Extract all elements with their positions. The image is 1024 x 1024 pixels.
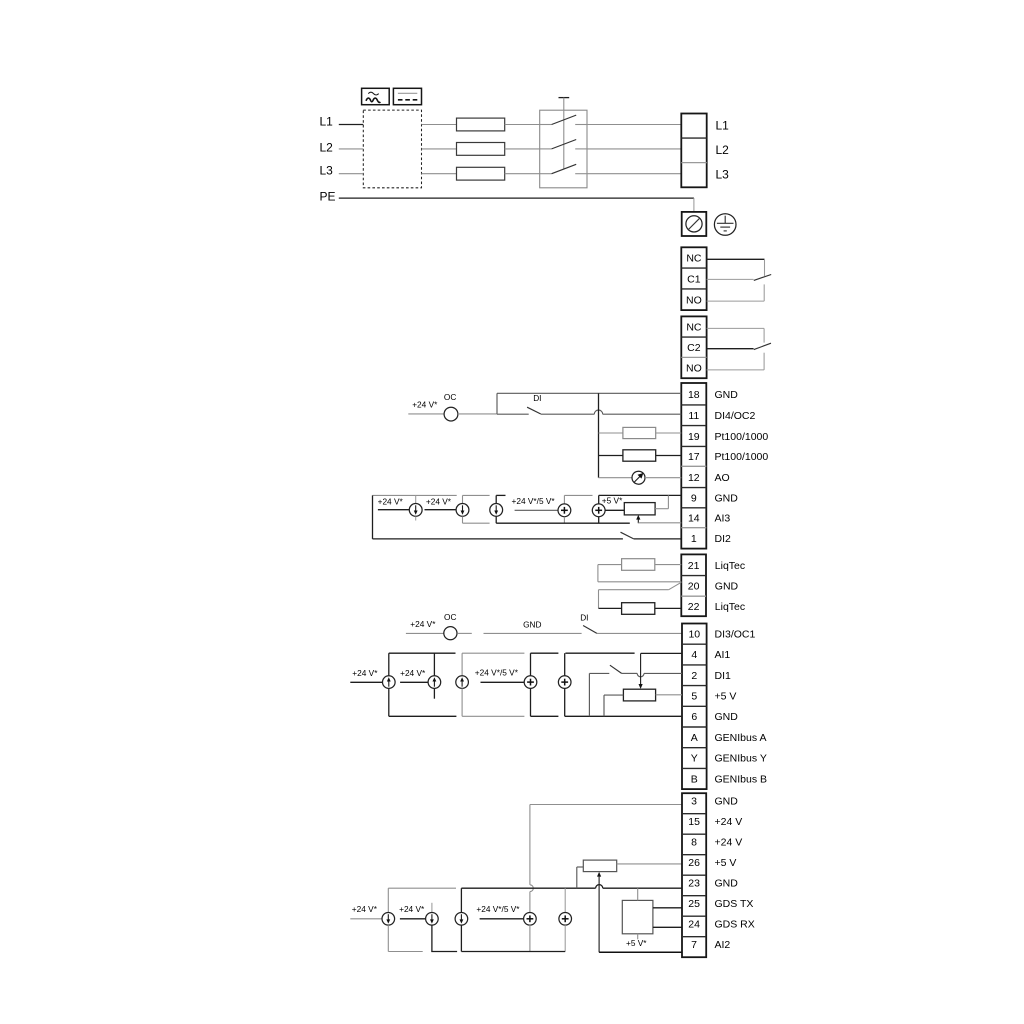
svg-text:11: 11: [688, 410, 699, 422]
svg-text:8: 8: [691, 837, 697, 849]
svg-text:AI1: AI1: [715, 649, 731, 661]
svg-text:LiqTec: LiqTec: [715, 560, 745, 572]
svg-text:5: 5: [691, 691, 697, 703]
svg-text:L1: L1: [716, 118, 730, 132]
svg-text:NC: NC: [686, 322, 702, 334]
svg-text:26: 26: [688, 857, 700, 869]
svg-text:+24 V*/5 V*: +24 V*/5 V*: [512, 496, 556, 506]
svg-text:+24 V: +24 V: [715, 837, 743, 849]
svg-text:GND: GND: [715, 581, 739, 593]
svg-text:PE: PE: [320, 189, 336, 203]
svg-text:DI3/OC1: DI3/OC1: [715, 628, 756, 640]
svg-text:DI1: DI1: [715, 670, 732, 682]
svg-text:A: A: [691, 732, 698, 744]
svg-text:L2: L2: [320, 140, 334, 154]
svg-text:19: 19: [688, 431, 700, 443]
svg-text:GENIbus A: GENIbus A: [715, 732, 767, 744]
svg-text:C2: C2: [687, 342, 701, 354]
svg-text:+5 V*: +5 V*: [602, 495, 623, 505]
svg-text:GENIbus B: GENIbus B: [715, 773, 768, 785]
svg-text:+24 V*: +24 V*: [400, 668, 426, 678]
svg-text:L3: L3: [320, 164, 334, 178]
svg-text:AI2: AI2: [715, 939, 731, 951]
svg-text:Pt100/1000: Pt100/1000: [715, 451, 769, 463]
svg-text:NO: NO: [686, 294, 702, 306]
svg-text:GENIbus Y: GENIbus Y: [715, 753, 767, 765]
svg-text:14: 14: [688, 513, 700, 525]
svg-text:10: 10: [688, 628, 700, 640]
svg-text:GND: GND: [715, 796, 739, 808]
svg-text:7: 7: [691, 939, 697, 951]
svg-text:20: 20: [688, 581, 700, 593]
svg-text:NC: NC: [686, 253, 702, 265]
svg-text:23: 23: [688, 878, 700, 890]
svg-text:25: 25: [688, 898, 700, 910]
svg-text:GND: GND: [715, 711, 739, 723]
svg-text:22: 22: [688, 601, 700, 613]
svg-text:GDS TX: GDS TX: [715, 898, 754, 910]
svg-text:+24 V*: +24 V*: [352, 904, 378, 914]
svg-text:15: 15: [688, 816, 700, 828]
svg-text:17: 17: [688, 451, 700, 463]
svg-text:DI: DI: [580, 612, 588, 622]
svg-text:GND: GND: [523, 620, 541, 630]
svg-text:L2: L2: [716, 143, 730, 157]
svg-text:OC: OC: [444, 612, 456, 622]
svg-text:B: B: [691, 773, 698, 785]
svg-text:LiqTec: LiqTec: [715, 601, 745, 613]
svg-text:GDS RX: GDS RX: [715, 919, 755, 931]
svg-text:+24 V*: +24 V*: [352, 668, 378, 678]
svg-text:21: 21: [688, 560, 700, 572]
svg-text:+5 V: +5 V: [715, 691, 737, 703]
svg-text:NO: NO: [686, 363, 702, 375]
svg-text:2: 2: [691, 670, 697, 682]
svg-text:9: 9: [691, 493, 697, 505]
svg-text:DI4/OC2: DI4/OC2: [715, 410, 756, 422]
svg-text:AO: AO: [715, 472, 730, 484]
svg-text:24: 24: [688, 919, 700, 931]
svg-text:GND: GND: [715, 493, 739, 505]
svg-text:4: 4: [691, 649, 697, 661]
svg-text:3: 3: [691, 796, 697, 808]
svg-text:+24 V*: +24 V*: [412, 399, 438, 409]
svg-text:L1: L1: [320, 115, 334, 129]
svg-text:+24 V*: +24 V*: [426, 497, 452, 507]
svg-text:GND: GND: [715, 878, 739, 890]
svg-text:Y: Y: [691, 753, 698, 765]
svg-text:Pt100/1000: Pt100/1000: [715, 431, 769, 443]
svg-text:DI: DI: [533, 393, 541, 403]
svg-text:12: 12: [688, 472, 700, 484]
svg-text:18: 18: [688, 389, 700, 401]
svg-text:OC: OC: [444, 392, 456, 402]
svg-text:+5 V: +5 V: [715, 857, 737, 869]
svg-text:1: 1: [691, 533, 697, 545]
svg-text:+24 V: +24 V: [715, 816, 743, 828]
svg-text:+5 V*: +5 V*: [626, 938, 647, 948]
svg-text:+24 V*/5 V*: +24 V*/5 V*: [475, 668, 519, 678]
svg-text:6: 6: [691, 711, 697, 723]
svg-text:+24 V*: +24 V*: [378, 497, 404, 507]
svg-text:L3: L3: [716, 168, 730, 182]
svg-text:+24 V*/5 V*: +24 V*/5 V*: [476, 904, 520, 914]
svg-text:C1: C1: [687, 273, 701, 285]
svg-text:GND: GND: [715, 389, 739, 401]
svg-text:DI2: DI2: [715, 533, 732, 545]
svg-text:+24 V*: +24 V*: [399, 904, 425, 914]
svg-text:AI3: AI3: [715, 513, 731, 525]
svg-text:+24 V*: +24 V*: [410, 619, 436, 629]
